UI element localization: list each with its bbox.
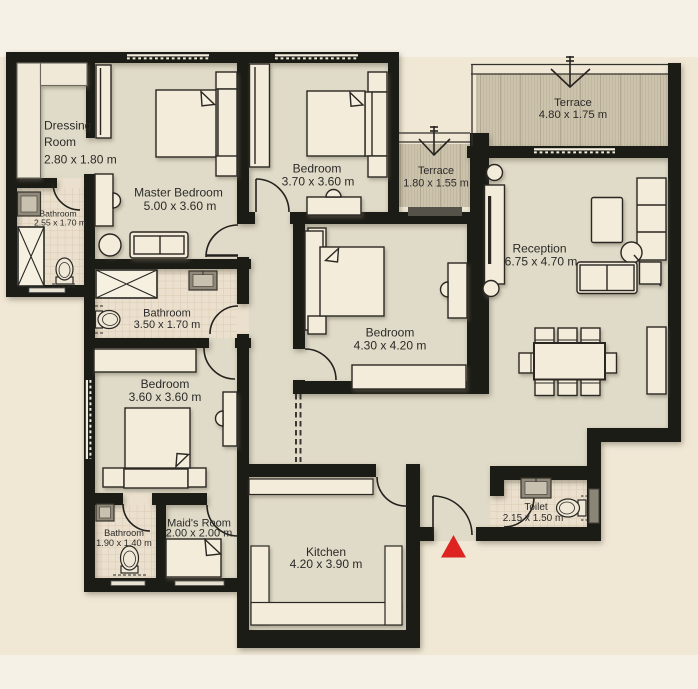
svg-text:4.20 x 3.90 m: 4.20 x 3.90 m: [290, 557, 363, 571]
svg-text:Bathroom: Bathroom: [104, 528, 144, 538]
svg-text:Reception: Reception: [512, 242, 566, 256]
svg-text:3.70 x 3.60 m: 3.70 x 3.60 m: [282, 175, 355, 189]
svg-text:Bedroom: Bedroom: [141, 377, 190, 391]
svg-text:1.80 x 1.55 m: 1.80 x 1.55 m: [403, 178, 468, 190]
svg-text:2.80 x 1.80 m: 2.80 x 1.80 m: [44, 153, 117, 167]
svg-text:Room: Room: [44, 135, 76, 149]
svg-text:3.50 x 1.70 m: 3.50 x 1.70 m: [134, 319, 201, 331]
svg-text:2.55 x 1.70 m: 2.55 x 1.70 m: [34, 218, 86, 228]
svg-text:4.30 x 4.20 m: 4.30 x 4.20 m: [354, 339, 427, 353]
svg-text:6.75 x 4.70 m: 6.75 x 4.70 m: [505, 255, 578, 269]
svg-text:1.90 x 1.40 m: 1.90 x 1.40 m: [96, 538, 152, 548]
svg-text:Toilet: Toilet: [524, 502, 548, 513]
svg-text:5.00 x 3.60 m: 5.00 x 3.60 m: [144, 199, 217, 213]
svg-text:Bedroom: Bedroom: [366, 326, 415, 340]
svg-text:Dressing: Dressing: [44, 119, 91, 133]
svg-text:Bedroom: Bedroom: [293, 162, 342, 176]
svg-text:2.15 x 1.50 m: 2.15 x 1.50 m: [503, 513, 564, 524]
svg-text:Terrace: Terrace: [554, 97, 592, 109]
svg-text:Terrace: Terrace: [418, 165, 454, 177]
svg-text:2.00 x 2.00 m: 2.00 x 2.00 m: [166, 528, 233, 540]
svg-text:4.80 x 1.75 m: 4.80 x 1.75 m: [539, 109, 607, 121]
svg-text:3.60 x 3.60 m: 3.60 x 3.60 m: [129, 390, 202, 404]
svg-text:Master Bedroom: Master Bedroom: [134, 186, 223, 200]
svg-text:Bathroom: Bathroom: [143, 308, 191, 320]
